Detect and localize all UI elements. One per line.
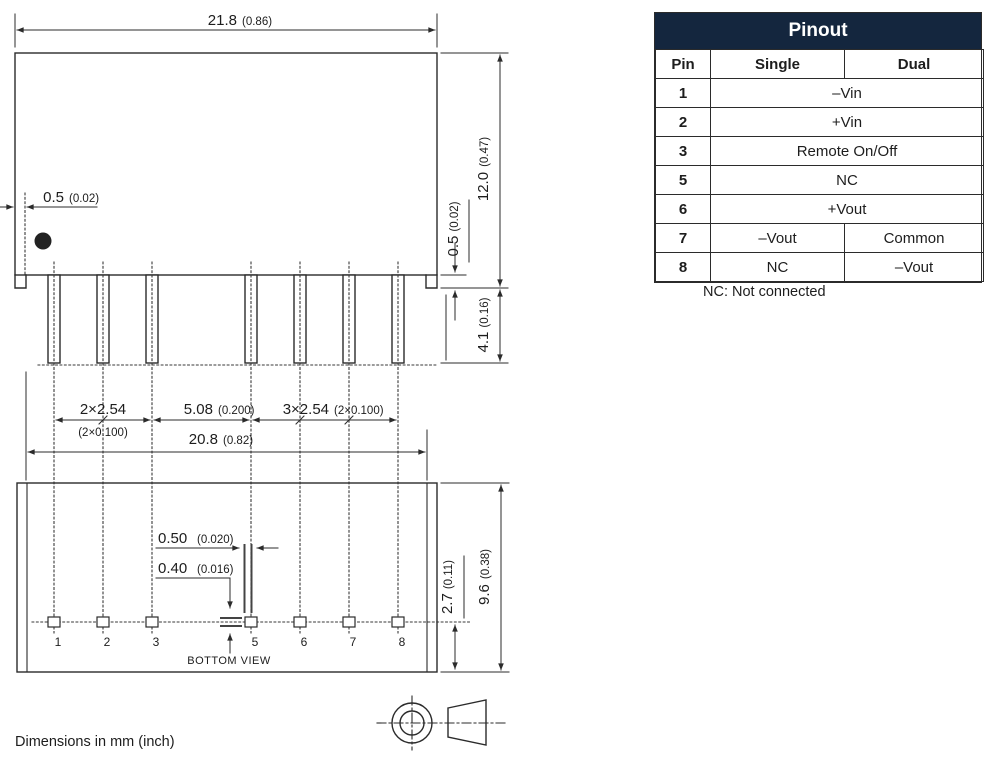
svg-text:(0.02): (0.02) bbox=[69, 193, 99, 205]
pin1-indicator-dot bbox=[35, 233, 52, 250]
side-view-pins bbox=[48, 275, 404, 363]
svg-text:(0.82): (0.82) bbox=[223, 435, 253, 447]
pin-cell: 5 bbox=[656, 166, 711, 195]
function-cell: +Vout bbox=[711, 195, 984, 224]
tolerance-notes: Dimensions in mm (inch) Tolerances: x.x … bbox=[15, 694, 232, 780]
package-drawing: 21.8 (0.86) 0.5 (0.02) 12.0(0.47) 0.5(0.… bbox=[0, 0, 540, 780]
dim-standoff-right: 0.5(0.02) bbox=[445, 201, 462, 256]
table-row: 2 +Vin bbox=[656, 108, 984, 137]
dim-depth-bottom: 9.6(0.38) bbox=[476, 549, 493, 605]
dim-pitch-right: 3×2.54 bbox=[283, 401, 329, 418]
table-row: 6 +Vout bbox=[656, 195, 984, 224]
dimension-labels: 21.8 (0.86) 0.5 (0.02) 12.0(0.47) 0.5(0.… bbox=[43, 12, 493, 667]
svg-text:6: 6 bbox=[301, 635, 308, 649]
single-cell: NC bbox=[711, 253, 845, 282]
dim-standoff-left: 0.5 bbox=[43, 189, 64, 206]
svg-text:3: 3 bbox=[153, 635, 160, 649]
svg-text:8: 8 bbox=[399, 635, 406, 649]
case-body bbox=[15, 53, 437, 275]
function-cell: NC bbox=[711, 166, 984, 195]
case-foot-right bbox=[426, 275, 437, 288]
case-foot-left bbox=[15, 275, 26, 288]
pin-cell: 6 bbox=[656, 195, 711, 224]
function-cell: –Vin bbox=[711, 79, 984, 108]
pinout-table: Pinout Pin Single Dual 1 –Vin 2 +Vin 3 R… bbox=[654, 12, 982, 283]
svg-text:(0.020): (0.020) bbox=[197, 534, 234, 546]
table-row: 5 NC bbox=[656, 166, 984, 195]
datasheet-page: 21.8 (0.86) 0.5 (0.02) 12.0(0.47) 0.5(0.… bbox=[0, 0, 991, 780]
bottom-dimension-lines bbox=[156, 483, 509, 672]
col-header-single: Single bbox=[711, 50, 845, 79]
col-header-pin: Pin bbox=[656, 50, 711, 79]
table-row: 8 NC –Vout bbox=[656, 253, 984, 282]
col-header-dual: Dual bbox=[845, 50, 984, 79]
svg-text:2: 2 bbox=[104, 635, 111, 649]
note-units: Dimensions in mm (inch) bbox=[15, 733, 232, 753]
dim-width-top: 21.8 bbox=[208, 12, 237, 29]
nc-footnote: NC: Not connected bbox=[703, 284, 826, 300]
svg-text:7: 7 bbox=[350, 635, 357, 649]
svg-text:(2×0.100): (2×0.100) bbox=[334, 405, 384, 417]
pinout-title: Pinout bbox=[655, 13, 981, 49]
dual-cell: Common bbox=[845, 224, 984, 253]
bottom-view-label: BOTTOM VIEW bbox=[187, 655, 271, 667]
svg-text:(0.016): (0.016) bbox=[197, 564, 234, 576]
function-cell: +Vin bbox=[711, 108, 984, 137]
dim-pin-length: 4.1(0.16) bbox=[475, 297, 492, 352]
svg-text:(2×0.100): (2×0.100) bbox=[78, 427, 128, 439]
dim-width-bottom: 20.8 bbox=[189, 431, 218, 448]
pin-cell: 7 bbox=[656, 224, 711, 253]
pinout-header-row: Pin Single Dual bbox=[656, 50, 984, 79]
svg-text:(0.86): (0.86) bbox=[242, 16, 272, 28]
projection-symbol bbox=[377, 696, 505, 750]
table-row: 1 –Vin bbox=[656, 79, 984, 108]
dim-pitch-left: 2×2.54 bbox=[80, 401, 126, 418]
dual-cell: –Vout bbox=[845, 253, 984, 282]
svg-text:(0.200): (0.200) bbox=[218, 405, 255, 417]
single-cell: –Vout bbox=[711, 224, 845, 253]
table-row: 3 Remote On/Off bbox=[656, 137, 984, 166]
function-cell: Remote On/Off bbox=[711, 137, 984, 166]
svg-text:1: 1 bbox=[55, 635, 62, 649]
dim-pin-width: 0.50 bbox=[158, 530, 187, 547]
pin-cell: 3 bbox=[656, 137, 711, 166]
dim-pin-row-offset: 2.7(0.11) bbox=[439, 560, 456, 614]
svg-text:5: 5 bbox=[252, 635, 259, 649]
dim-pitch-mid: 5.08 bbox=[184, 401, 213, 418]
table-row: 7 –Vout Common bbox=[656, 224, 984, 253]
dim-pin-thickness: 0.40 bbox=[158, 560, 187, 577]
pin-cell: 8 bbox=[656, 253, 711, 282]
dim-height-right: 12.0(0.47) bbox=[475, 137, 492, 201]
pin-cell: 2 bbox=[656, 108, 711, 137]
pin-cell: 1 bbox=[656, 79, 711, 108]
side-view bbox=[15, 53, 437, 363]
